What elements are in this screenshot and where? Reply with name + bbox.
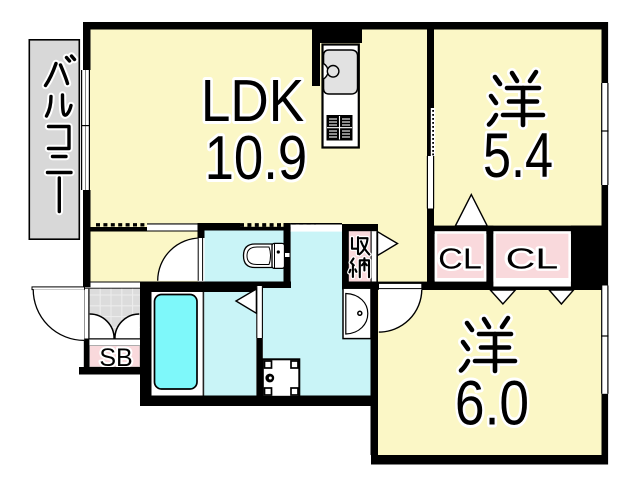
svg-text:5.4: 5.4 xyxy=(483,120,553,191)
svg-text:10.9: 10.9 xyxy=(205,124,308,193)
svg-text:CL: CL xyxy=(438,242,482,275)
svg-text:CL: CL xyxy=(506,243,559,276)
svg-text:6.0: 6.0 xyxy=(455,368,529,438)
